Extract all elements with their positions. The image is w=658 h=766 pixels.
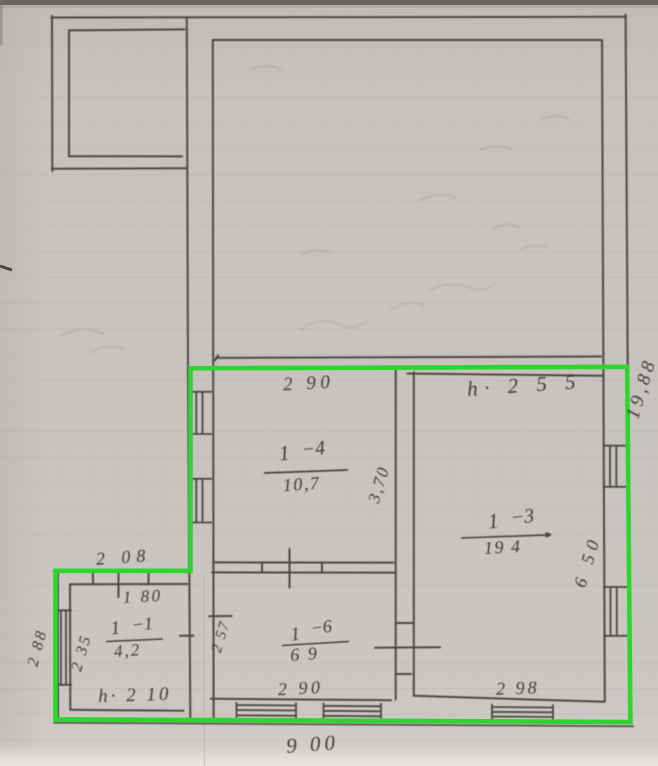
svg-text:h· 2 10: h· 2 10	[98, 684, 172, 708]
svg-text:−6: −6	[310, 616, 333, 638]
svg-text:2 90: 2 90	[283, 372, 335, 396]
svg-text:−1: −1	[131, 613, 154, 635]
svg-text:1 80: 1 80	[122, 586, 163, 607]
svg-text:−3: −3	[510, 505, 536, 529]
svg-text:4,2: 4,2	[113, 640, 142, 661]
svg-text:19 4: 19 4	[483, 536, 521, 558]
svg-text:6 9: 6 9	[290, 643, 320, 665]
svg-text:−4: −4	[301, 437, 327, 461]
svg-text:10,7: 10,7	[282, 473, 321, 496]
svg-text:2 90: 2 90	[277, 677, 323, 699]
svg-text:2 98: 2 98	[496, 677, 540, 699]
svg-text:2 08: 2 08	[95, 545, 152, 569]
svg-text:9 00: 9 00	[285, 730, 339, 758]
